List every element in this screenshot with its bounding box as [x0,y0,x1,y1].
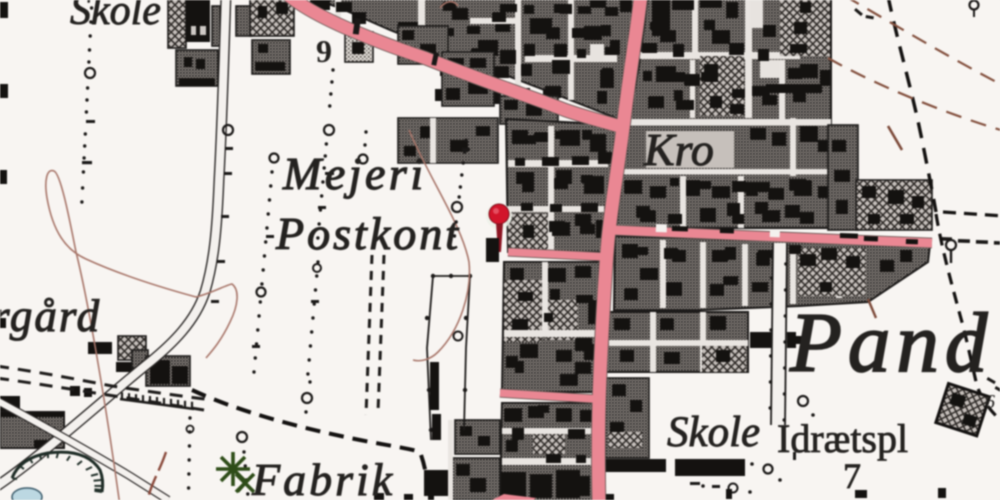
svg-text:Kro: Kro [643,124,714,175]
svg-text:7: 7 [843,456,861,496]
svg-text:Skole: Skole [667,409,760,456]
svg-text:Mejeri: Mejeri [282,148,427,199]
svg-text:9: 9 [316,33,332,69]
svg-text:Fabrik: Fabrik [251,454,395,500]
svg-text:Skole: Skole [70,0,161,34]
svg-text:rgård: rgård [0,291,101,341]
svg-text:Postkont: Postkont [275,208,461,259]
svg-text:Pand: Pand [789,296,993,390]
svg-text:Idrætspl: Idrætspl [777,416,908,461]
svg-text:6: 6 [985,391,995,413]
